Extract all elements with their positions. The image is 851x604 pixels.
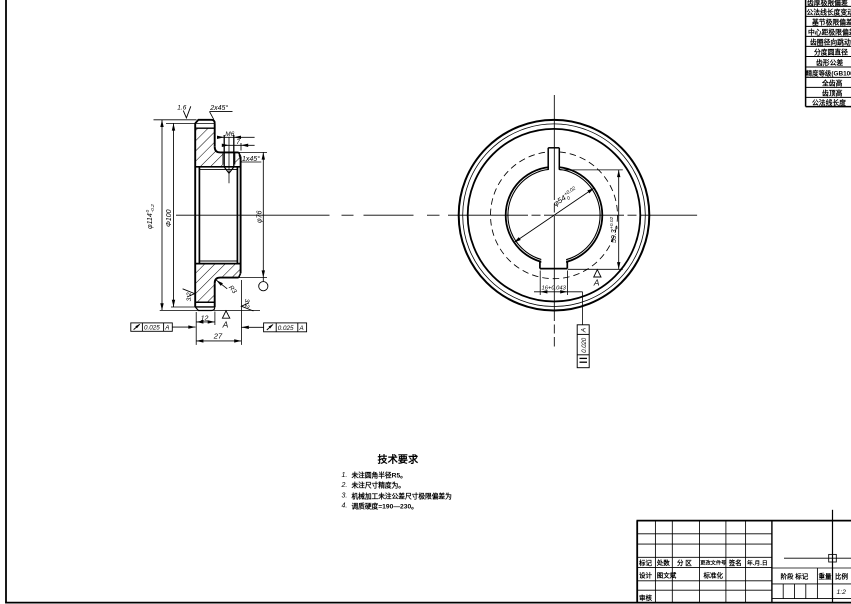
svg-text:φ76: φ76	[257, 211, 264, 223]
svg-text:59.3: 59.3	[611, 229, 618, 243]
svg-text:精度等级(GB10095-88): 精度等级(GB10095-88)	[806, 69, 851, 78]
svg-text:更改文件号: 更改文件号	[700, 559, 726, 567]
svg-text:分 区: 分 区	[677, 558, 692, 567]
svg-text:技术要求: 技术要求	[378, 453, 420, 466]
svg-text:2.: 2.	[341, 482, 348, 489]
svg-text:1:2: 1:2	[837, 589, 847, 596]
svg-text:处数: 处数	[656, 558, 671, 567]
svg-text:标准化: 标准化	[703, 571, 724, 580]
svg-text:中心距极限偏差: 中心距极限偏差	[808, 28, 851, 37]
svg-text:-0.2: -0.2	[150, 204, 156, 213]
svg-text:比例: 比例	[835, 572, 849, 581]
svg-text:机械加工未注公差尺寸极限偏差为: 机械加工未注公差尺寸极限偏差为	[352, 491, 453, 500]
svg-text:A: A	[222, 320, 229, 330]
svg-text:齿顶高: 齿顶高	[822, 89, 843, 98]
svg-text:审核: 审核	[639, 593, 653, 602]
svg-text:公法线长度: 公法线长度	[812, 98, 846, 107]
svg-text:全齿高: 全齿高	[821, 79, 843, 88]
svg-text:0.020: 0.020	[582, 337, 588, 353]
svg-text:φ114: φ114	[147, 213, 154, 229]
svg-text:年.月.日: 年.月.日	[747, 559, 768, 567]
svg-text:3.2: 3.2	[186, 292, 193, 301]
svg-text:M6: M6	[225, 131, 234, 138]
svg-text:重量: 重量	[819, 572, 833, 581]
svg-text:标记: 标记	[638, 558, 653, 567]
svg-text:齿厚极限偏差: 齿厚极限偏差	[807, 0, 848, 7]
svg-text:1.6: 1.6	[177, 104, 186, 111]
svg-text:12: 12	[201, 315, 209, 322]
svg-text:A: A	[164, 325, 169, 332]
svg-text:0.025: 0.025	[144, 325, 160, 332]
svg-text:3.: 3.	[342, 493, 348, 500]
svg-text:16+0.043: 16+0.043	[542, 286, 567, 292]
svg-text:2x45°: 2x45°	[209, 104, 228, 112]
svg-text:7: 7	[236, 139, 240, 146]
svg-text:0.025: 0.025	[278, 325, 294, 332]
svg-text:3.2: 3.2	[243, 299, 250, 308]
svg-text:A: A	[581, 328, 588, 333]
svg-text:未注尺寸精度为。: 未注尺寸精度为。	[352, 480, 406, 489]
svg-text:公法线长度变动公: 公法线长度变动公	[807, 8, 851, 17]
svg-text:未注圆角半径R5。: 未注圆角半径R5。	[352, 470, 407, 479]
svg-text:27: 27	[213, 332, 223, 341]
svg-text:基节极限偏差: 基节极限偏差	[811, 18, 851, 27]
svg-text:分度圆直径: 分度圆直径	[814, 48, 848, 57]
svg-text:4.: 4.	[342, 503, 348, 510]
svg-text:A: A	[593, 277, 600, 287]
svg-text:Φ100: Φ100	[166, 209, 173, 227]
svg-text:齿圈径向跳动公: 齿圈径向跳动公	[810, 38, 851, 47]
svg-text:阶段 标记: 阶段 标记	[781, 572, 809, 581]
svg-text:A: A	[299, 325, 304, 332]
svg-text:图文斌: 图文斌	[657, 571, 677, 580]
svg-text:设计: 设计	[639, 571, 653, 580]
svg-text:齿形公差: 齿形公差	[816, 58, 843, 67]
svg-text:调质硬度=190—230。: 调质硬度=190—230。	[352, 501, 418, 510]
svg-text:0: 0	[614, 226, 620, 229]
svg-text:签名: 签名	[728, 558, 742, 567]
svg-text:1.: 1.	[342, 472, 348, 479]
